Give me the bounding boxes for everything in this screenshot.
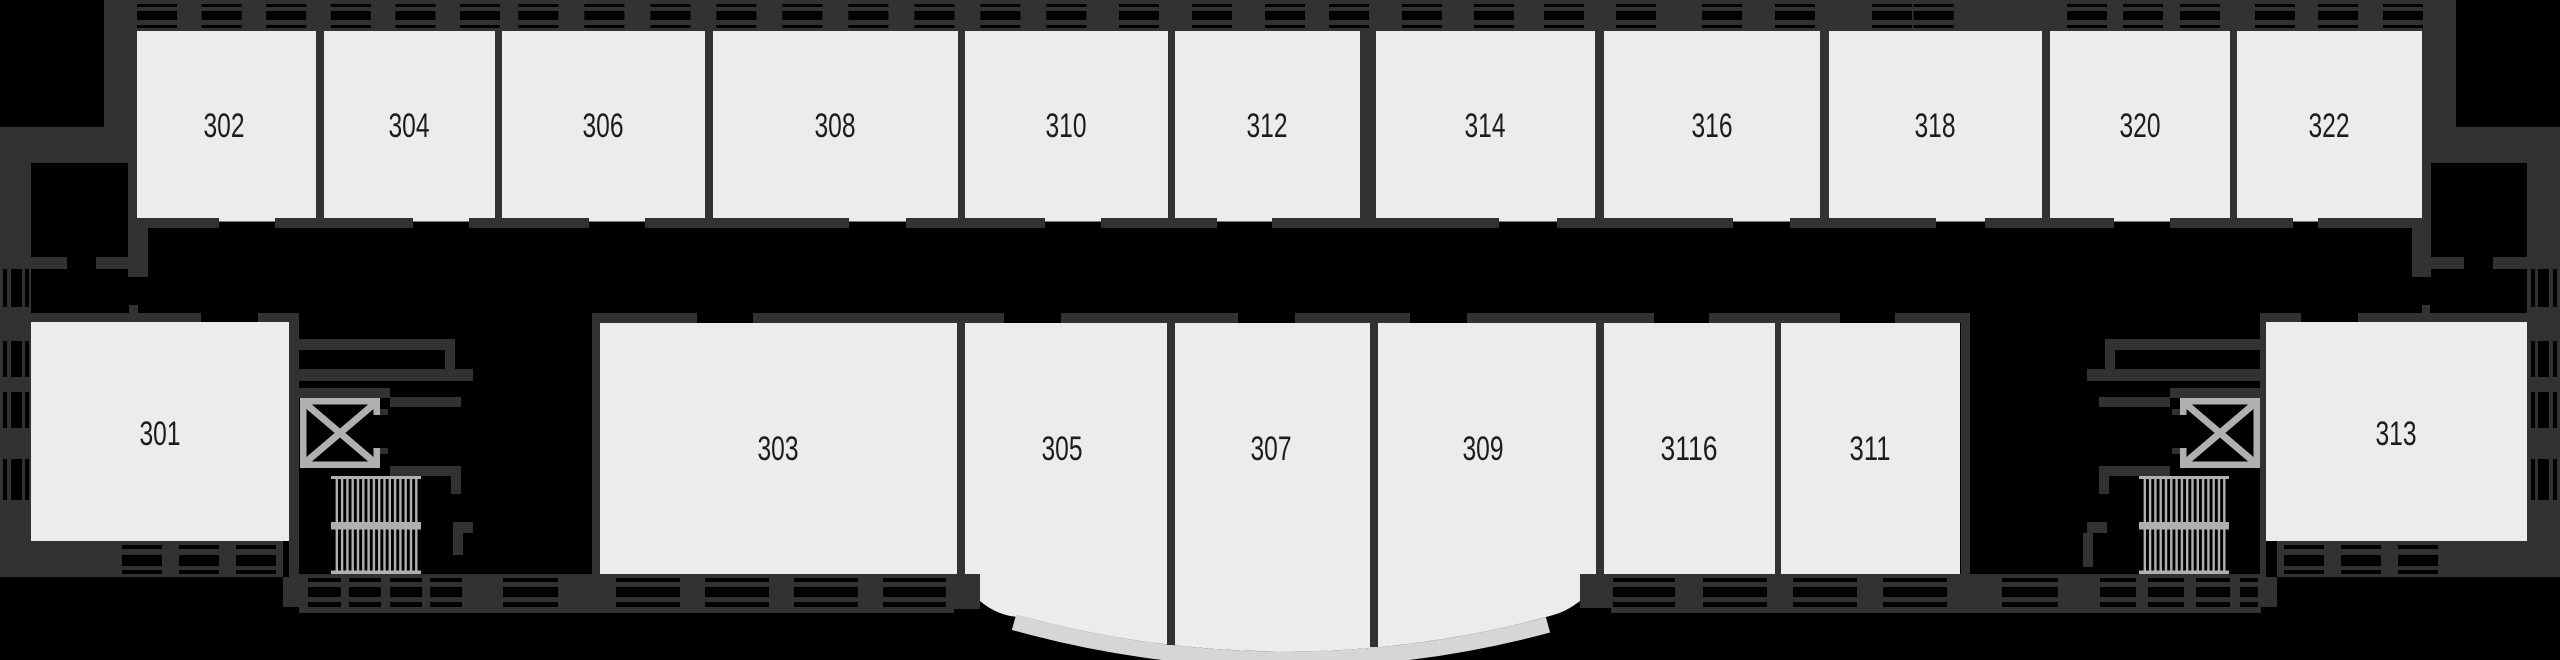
svg-text:308: 308 [815,107,856,145]
svg-text:301: 301 [140,415,181,453]
svg-text:306: 306 [583,107,624,145]
svg-text:310: 310 [1046,107,1087,145]
svg-text:303: 303 [758,430,799,468]
svg-text:3116: 3116 [1661,430,1718,468]
svg-text:305: 305 [1042,430,1083,468]
svg-text:304: 304 [389,107,430,145]
svg-text:309: 309 [1463,430,1504,468]
svg-text:302: 302 [204,107,245,145]
svg-text:313: 313 [2376,415,2417,453]
svg-text:311: 311 [1850,430,1891,468]
svg-text:314: 314 [1465,107,1506,145]
svg-text:320: 320 [2120,107,2161,145]
svg-text:316: 316 [1692,107,1733,145]
svg-text:318: 318 [1915,107,1956,145]
svg-text:322: 322 [2309,107,2350,145]
svg-text:312: 312 [1247,107,1288,145]
svg-text:307: 307 [1251,430,1292,468]
